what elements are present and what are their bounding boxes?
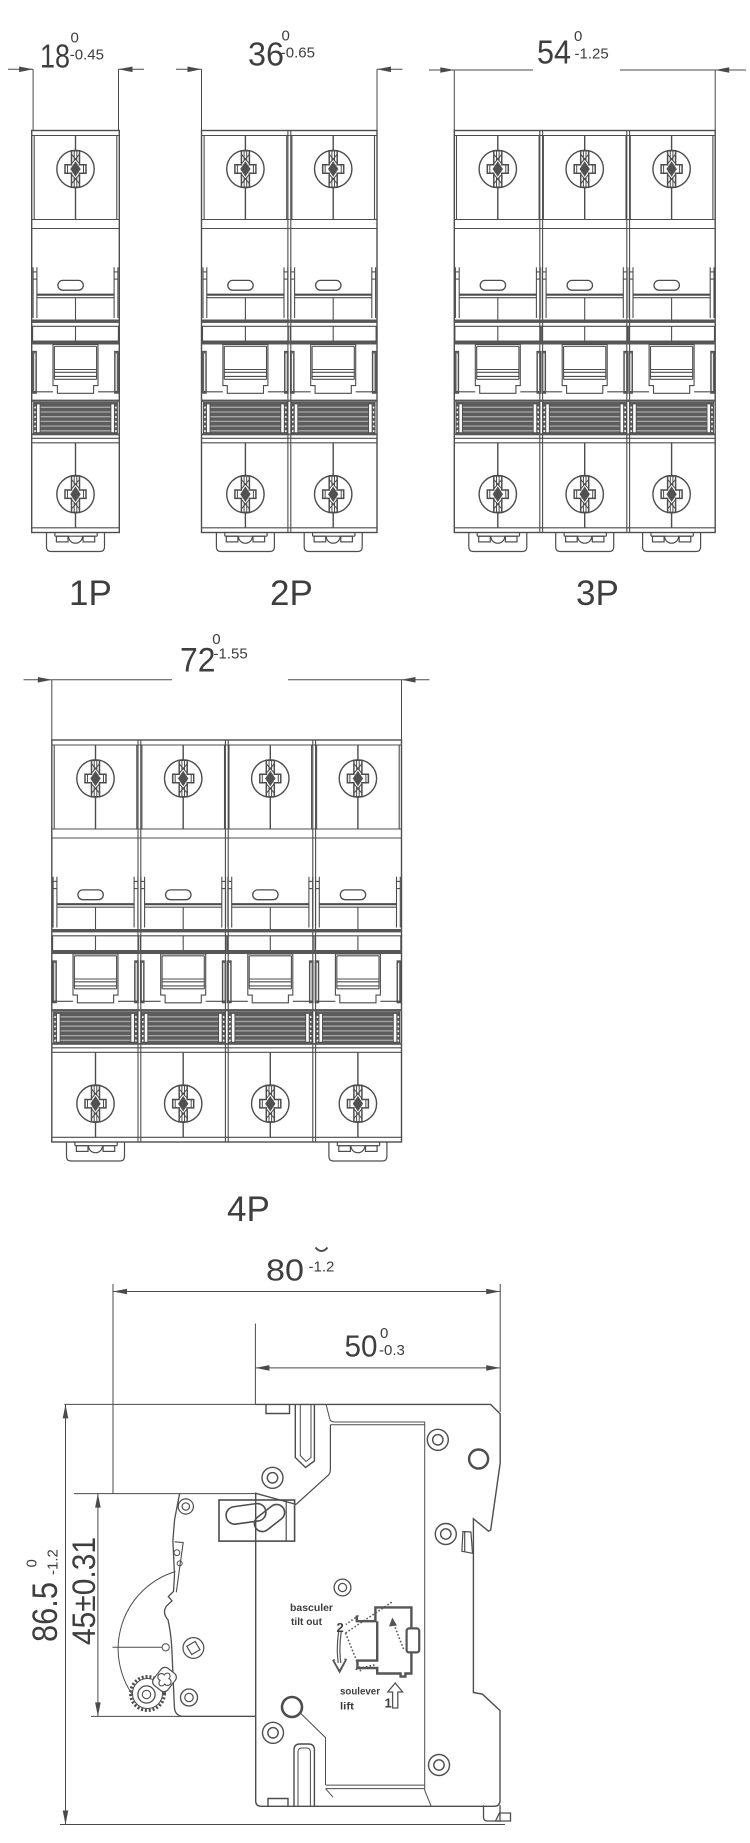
svg-text:-1.55: -1.55: [214, 646, 248, 663]
svg-text:2: 2: [337, 1620, 344, 1635]
svg-text:4P: 4P: [227, 1190, 270, 1229]
svg-text:0: 0: [574, 28, 582, 45]
svg-text:lift: lift: [340, 1701, 355, 1713]
svg-text:86.5: 86.5: [26, 1582, 65, 1642]
svg-text:80: 80: [266, 1253, 304, 1288]
svg-text:basculer: basculer: [290, 1602, 333, 1614]
svg-text:-0.3: -0.3: [379, 1342, 405, 1359]
svg-text:1P: 1P: [69, 574, 112, 613]
svg-text:0: 0: [282, 27, 290, 44]
svg-text:3P: 3P: [576, 574, 619, 613]
svg-text:-0.65: -0.65: [281, 45, 315, 62]
svg-text:36: 36: [248, 36, 284, 73]
svg-text:1: 1: [385, 1696, 392, 1711]
svg-text:54: 54: [537, 34, 571, 71]
svg-text:soulever: soulever: [340, 1686, 380, 1698]
svg-text:45±0.31: 45±0.31: [66, 1537, 102, 1645]
svg-text:50: 50: [345, 1329, 378, 1364]
svg-text:2P: 2P: [270, 574, 313, 613]
svg-text:18: 18: [40, 38, 70, 75]
svg-text:-0.45: -0.45: [70, 47, 104, 64]
svg-text:-1.25: -1.25: [575, 46, 609, 63]
svg-text:tilt out: tilt out: [291, 1616, 322, 1628]
svg-text:0: 0: [380, 1325, 388, 1342]
svg-text:0: 0: [24, 1559, 41, 1567]
svg-text:0: 0: [71, 29, 79, 46]
svg-text:72: 72: [180, 642, 216, 680]
svg-text:-1.2: -1.2: [309, 1259, 335, 1276]
svg-text:-1.2: -1.2: [45, 1549, 62, 1575]
